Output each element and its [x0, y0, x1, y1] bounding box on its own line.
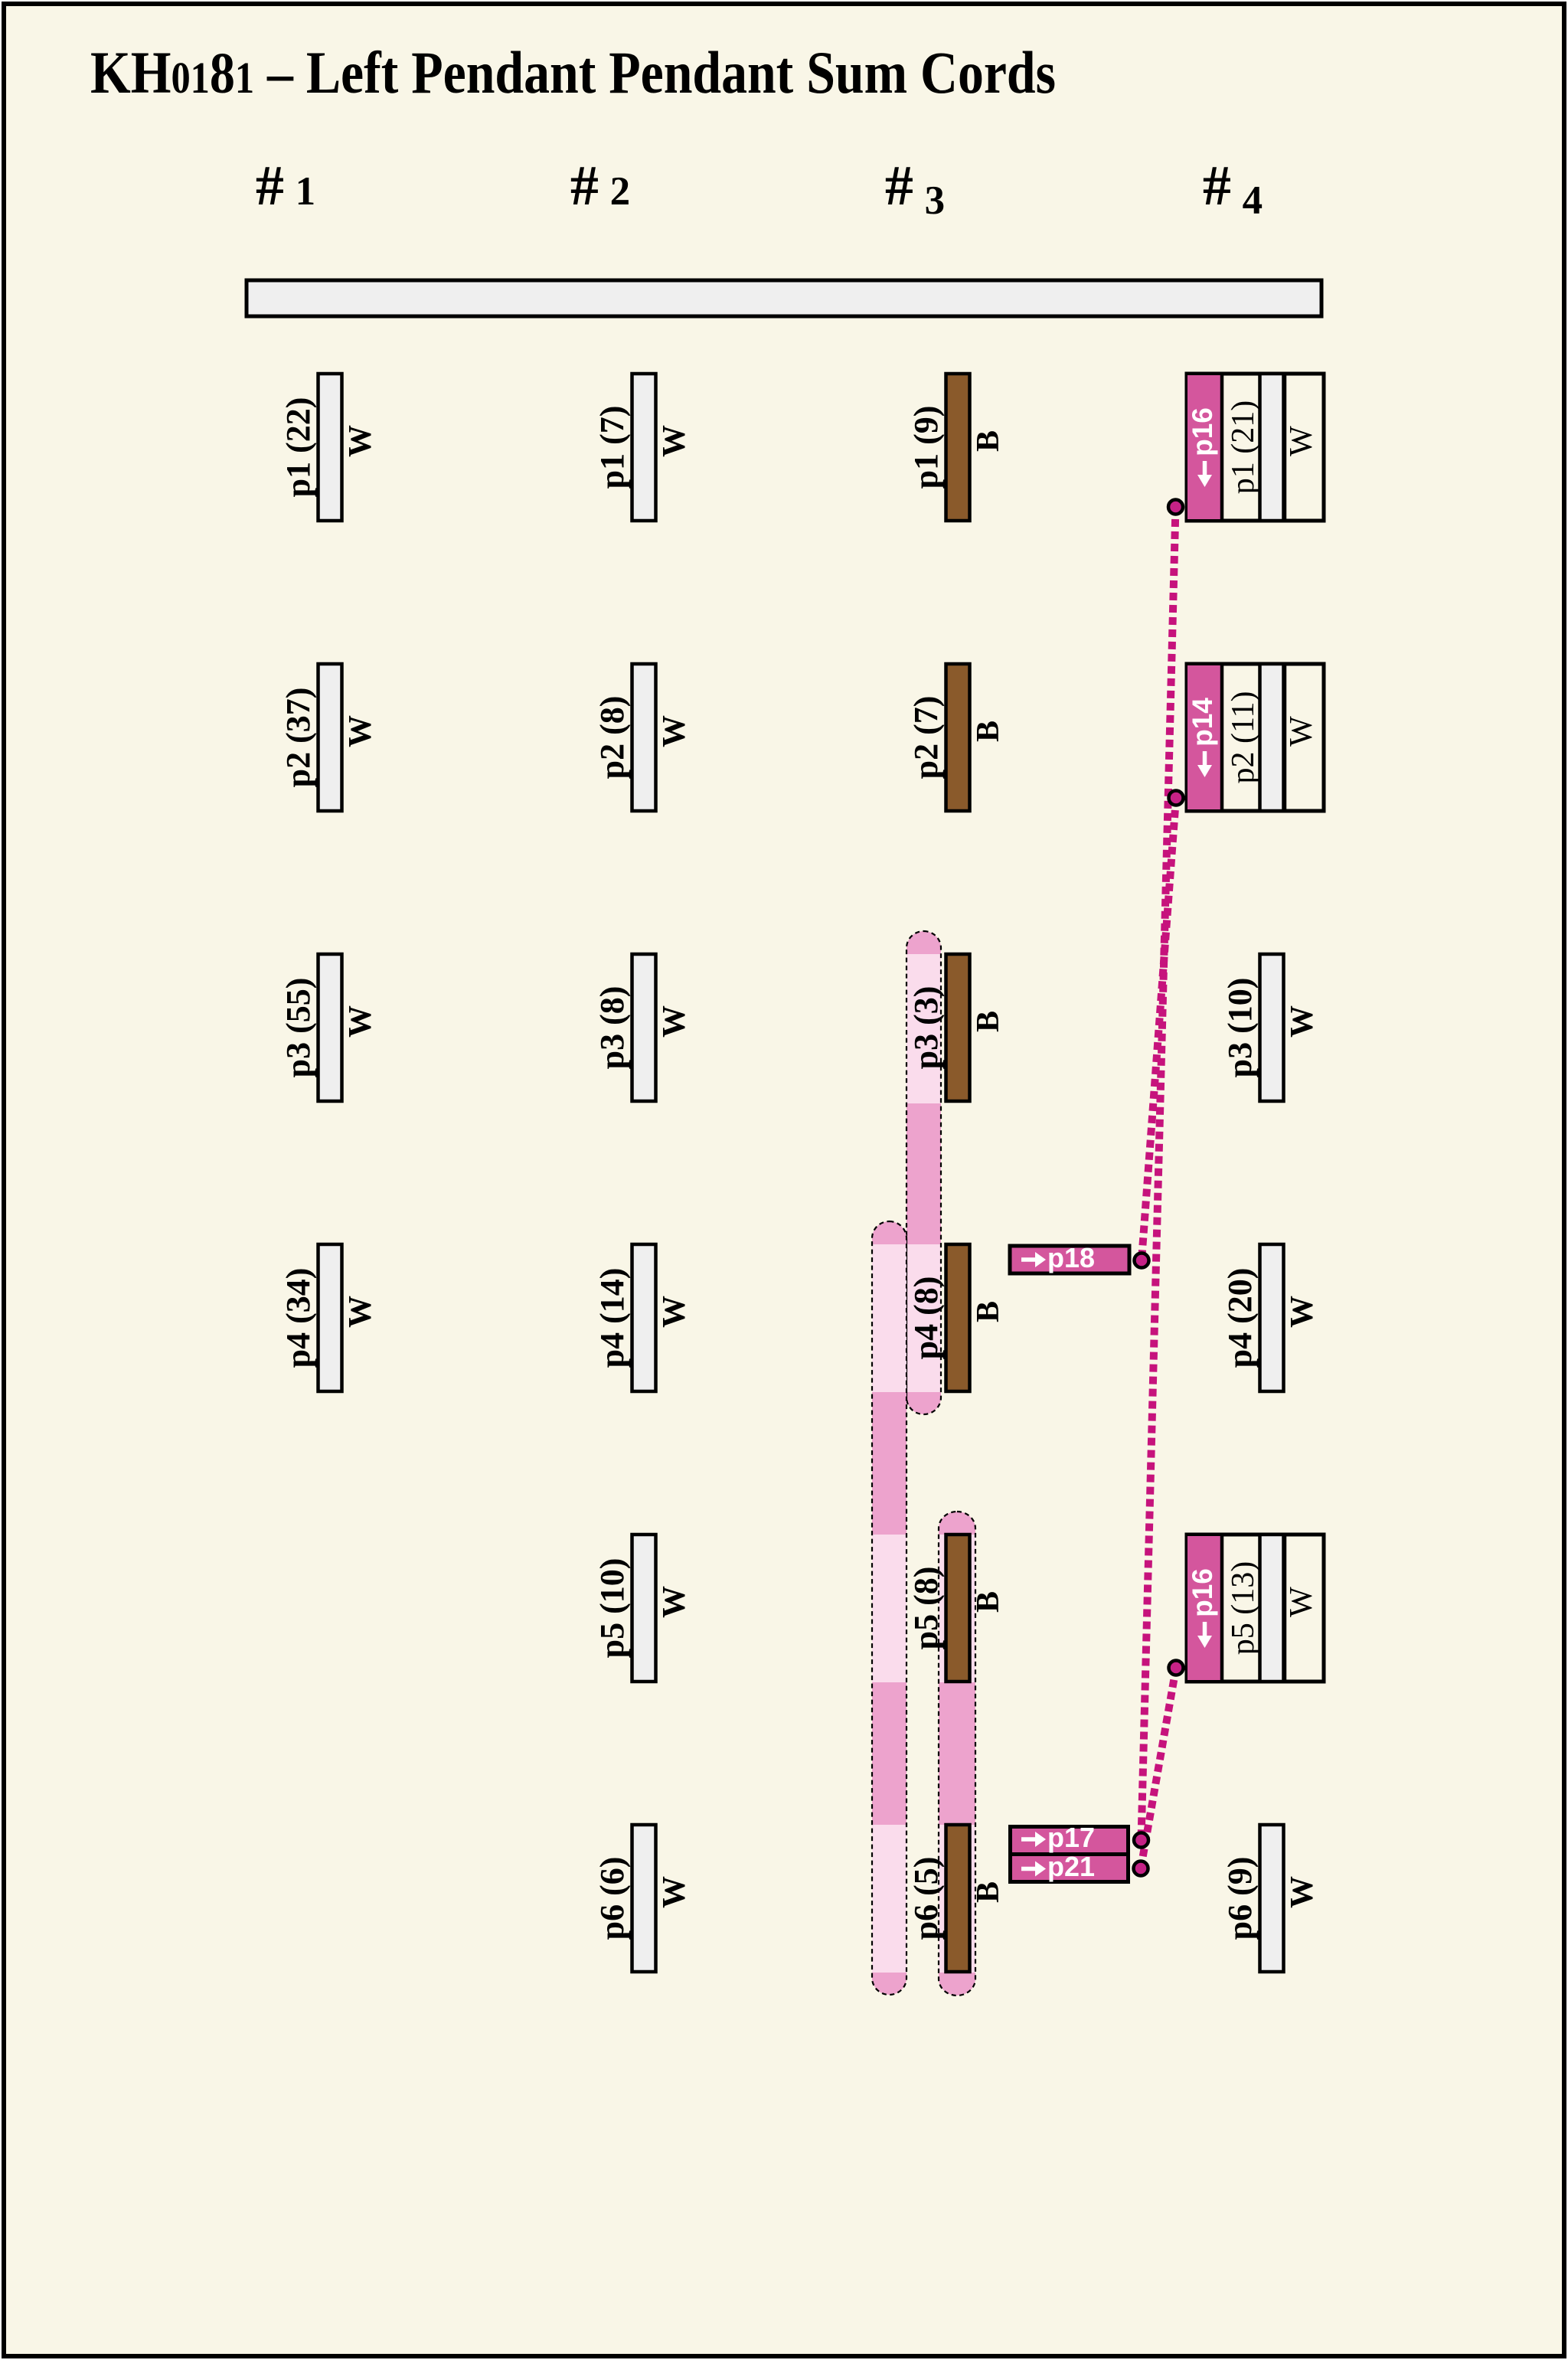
- svg-text:W: W: [657, 1005, 692, 1038]
- svg-text:W: W: [657, 1586, 692, 1618]
- svg-text:p16: p16: [1187, 1568, 1218, 1617]
- svg-text:p1 (22): p1 (22): [279, 397, 317, 498]
- svg-text:p18: p18: [1047, 1242, 1095, 1273]
- svg-text:p21: p21: [1047, 1851, 1095, 1882]
- svg-text:W: W: [1285, 1296, 1320, 1328]
- svg-text:p2 (7): p2 (7): [907, 696, 945, 780]
- svg-text:p6 (6): p6 (6): [593, 1857, 631, 1940]
- svg-text:p1 (7): p1 (7): [593, 406, 631, 489]
- svg-text:B: B: [971, 1011, 1006, 1032]
- svg-text:p2 (11): p2 (11): [1226, 691, 1261, 784]
- svg-text:p5 (8): p5 (8): [907, 1567, 945, 1650]
- svg-text:p4 (14): p4 (14): [593, 1268, 631, 1368]
- svg-text:p3 (10): p3 (10): [1221, 978, 1259, 1078]
- svg-text:p16: p16: [1187, 407, 1218, 456]
- svg-text:W: W: [657, 1876, 692, 1908]
- svg-text:W: W: [1285, 1876, 1320, 1908]
- svg-text:p5 (10): p5 (10): [593, 1558, 631, 1659]
- svg-text:B: B: [971, 1301, 1006, 1322]
- svg-text:W: W: [657, 715, 692, 747]
- svg-text:p1 (9): p1 (9): [907, 406, 945, 489]
- svg-text:W: W: [343, 425, 378, 457]
- svg-text:W: W: [1284, 426, 1319, 456]
- svg-text:W: W: [1285, 1005, 1320, 1038]
- svg-text:p14: p14: [1187, 698, 1218, 747]
- svg-text:p5 (13): p5 (13): [1226, 1561, 1261, 1655]
- svg-text:W: W: [343, 715, 378, 747]
- svg-text:p6 (9): p6 (9): [1221, 1857, 1259, 1940]
- svg-text:p3 (55): p3 (55): [279, 978, 317, 1078]
- svg-text:p2 (37): p2 (37): [279, 688, 317, 788]
- svg-text:B: B: [971, 1591, 1006, 1613]
- svg-text:p2 (8): p2 (8): [593, 696, 631, 780]
- svg-text:W: W: [1284, 716, 1319, 747]
- svg-text:B: B: [971, 721, 1006, 742]
- svg-text:B: B: [971, 430, 1006, 452]
- svg-text:p3 (3): p3 (3): [907, 986, 945, 1070]
- svg-text:p4 (20): p4 (20): [1221, 1268, 1259, 1368]
- svg-text:p6 (5): p6 (5): [907, 1857, 945, 1940]
- svg-text:p17: p17: [1047, 1822, 1095, 1853]
- svg-text:W: W: [1284, 1587, 1319, 1617]
- svg-text:p4 (8): p4 (8): [907, 1276, 945, 1360]
- svg-text:W: W: [657, 1296, 692, 1328]
- svg-text:W: W: [343, 1005, 378, 1038]
- svg-text:W: W: [343, 1296, 378, 1328]
- svg-text:W: W: [657, 425, 692, 457]
- svg-text:p4 (34): p4 (34): [279, 1268, 317, 1368]
- svg-text:p3 (8): p3 (8): [593, 986, 631, 1070]
- svg-text:B: B: [971, 1881, 1006, 1903]
- svg-text:p1 (21): p1 (21): [1226, 400, 1261, 494]
